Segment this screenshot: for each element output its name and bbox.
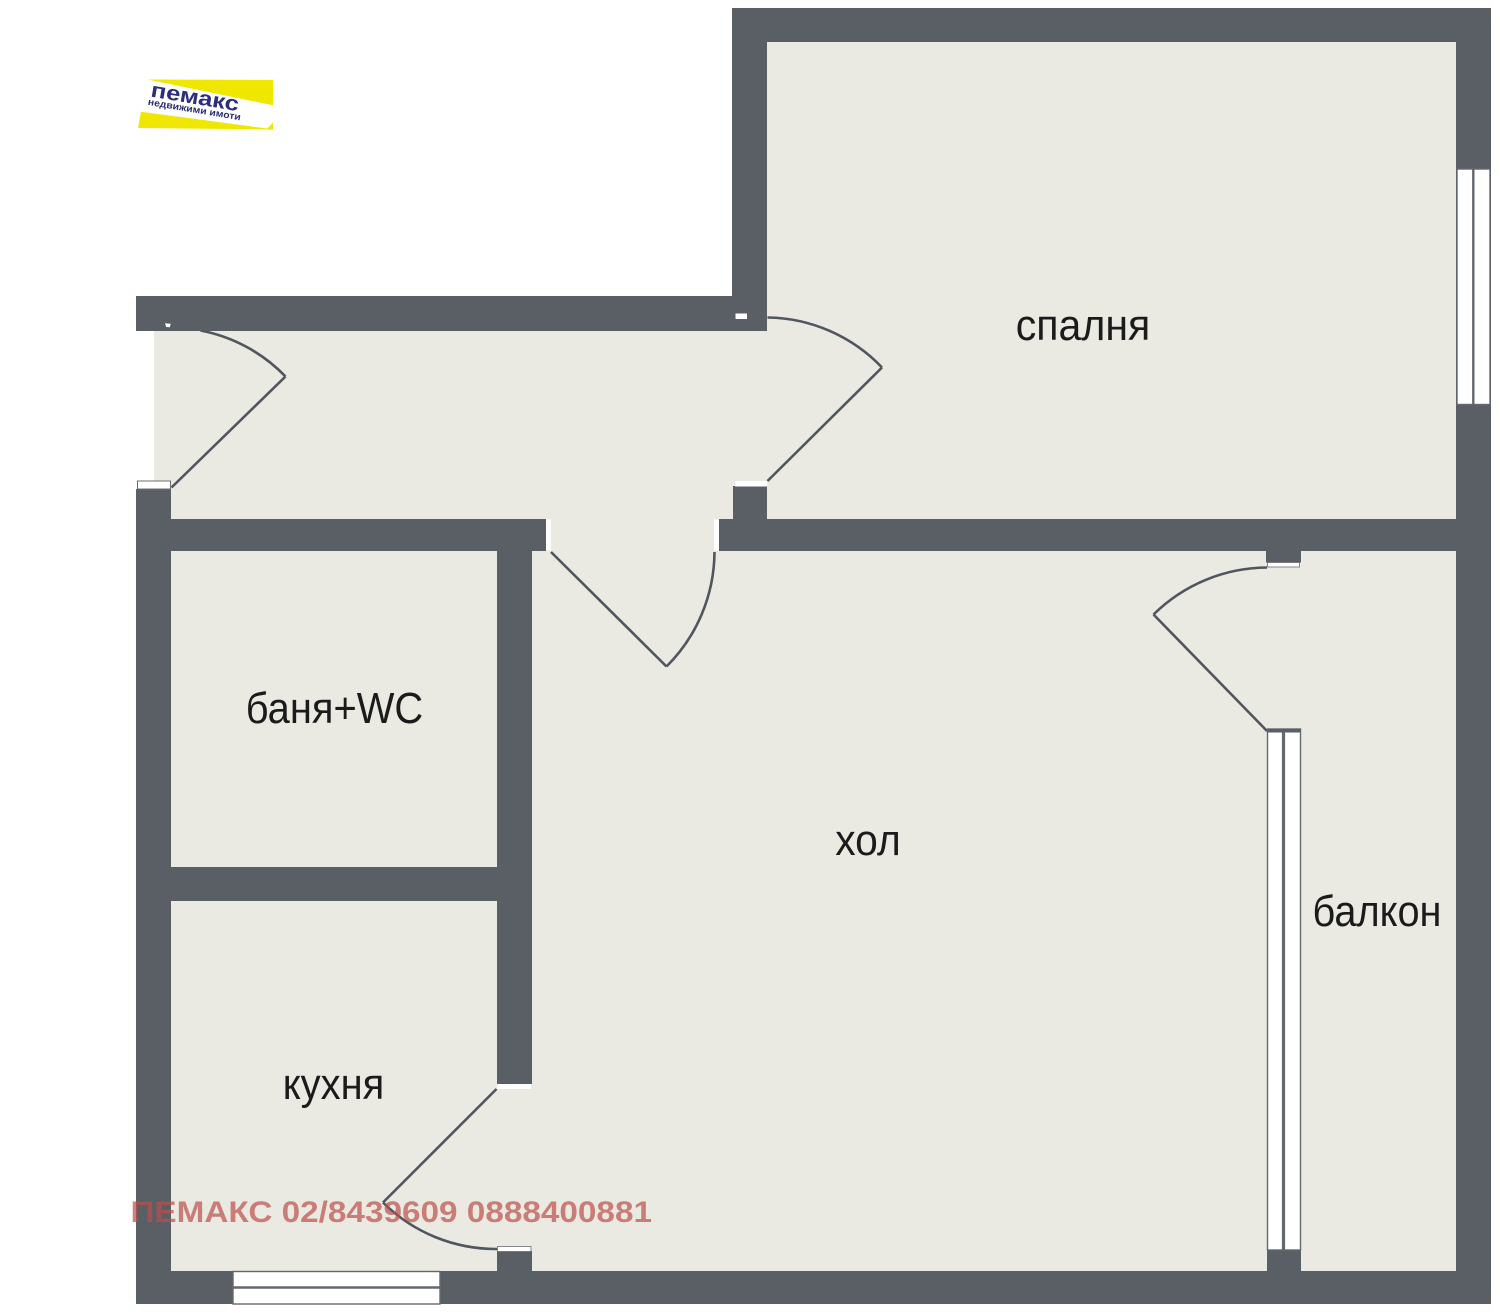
svg-text:баня+WC: баня+WC [246,684,424,733]
svg-text:кухня: кухня [283,1060,385,1109]
svg-text:спалня: спалня [1016,301,1151,350]
svg-text:ПЕМАКС 02/8439609 0888400881: ПЕМАКС 02/8439609 0888400881 [131,1196,653,1229]
svg-text:балкон: балкон [1313,887,1442,936]
svg-text:хол: хол [835,816,901,865]
